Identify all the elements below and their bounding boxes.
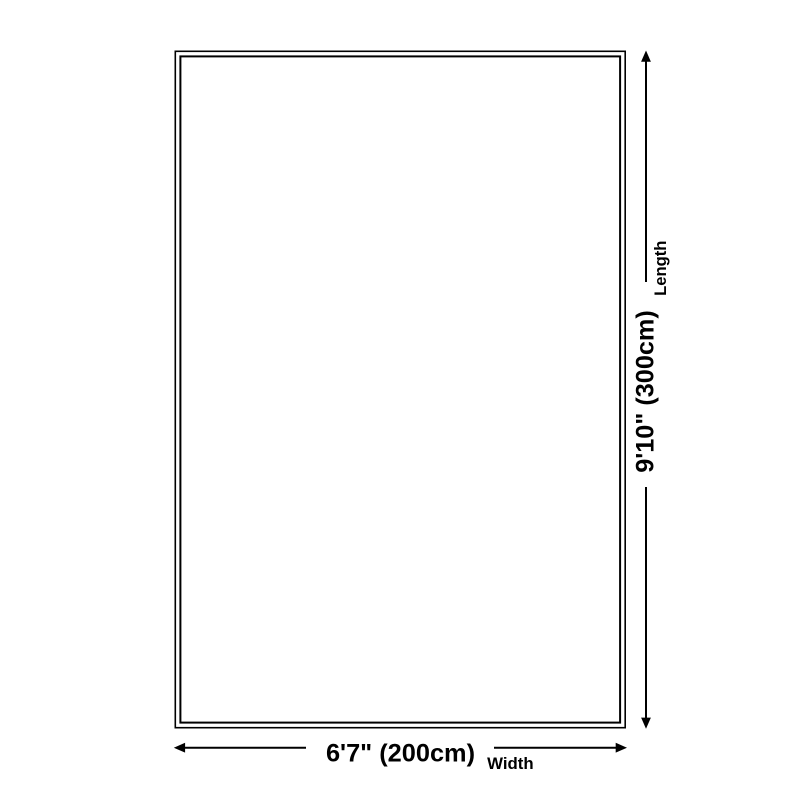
svg-text:6'7" (200cm): 6'7" (200cm) <box>326 739 475 767</box>
svg-text:9'10" (300cm): 9'10" (300cm) <box>632 310 660 473</box>
svg-text:Length: Length <box>651 241 670 296</box>
svg-text:Width: Width <box>487 754 533 773</box>
